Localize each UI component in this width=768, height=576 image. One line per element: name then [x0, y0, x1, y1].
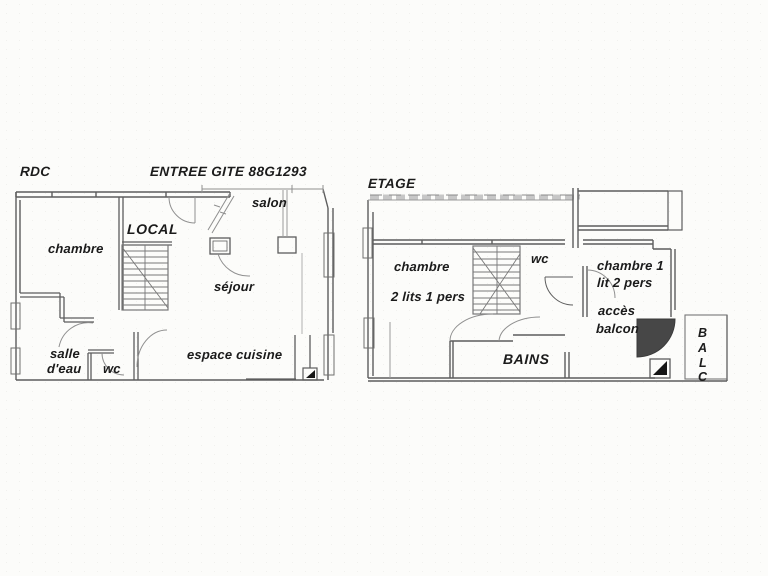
etage-floorplan-drawing	[362, 170, 768, 400]
rdc-label-wc: wc	[103, 361, 121, 376]
rdc-label-salon: salon	[252, 195, 287, 210]
etage-label-balcon: balcon	[596, 321, 640, 336]
etage-balcon-letter-a: A	[698, 341, 707, 355]
etage-door-arcs	[450, 270, 615, 341]
rdc-floor-label: RDC	[20, 164, 51, 179]
rdc-label-chambre: chambre	[48, 241, 104, 256]
etage-floor-label: ETAGE	[368, 176, 416, 191]
etage-balcon-letter-l: L	[699, 356, 707, 370]
rdc-label-salle-eau-line2: d'eau	[47, 361, 82, 376]
rdc-label-local: LOCAL	[127, 221, 179, 237]
etage-label-bains: BAINS	[503, 351, 550, 367]
etage-label-acces: accès	[598, 303, 636, 318]
scanned-floorplan-page: { "colors": { "wall": "#5d5d5d", "thin_w…	[0, 0, 768, 576]
rdc-corner-chimney	[303, 368, 317, 380]
etage-balcony-door	[637, 319, 675, 357]
etage-label-chambre1-bed: lit 2 pers	[597, 275, 653, 290]
rdc-label-espace-cuisine: espace cuisine	[187, 347, 283, 362]
rdc-floorplan: RDC ENTREE GITE 88G1293 salon LOCAL cham…	[6, 160, 358, 410]
rdc-title: ENTREE GITE 88G1293	[150, 164, 307, 179]
etage-corner-chimney	[650, 359, 670, 378]
rdc-label-sejour: séjour	[214, 279, 255, 294]
etage-floorplan: ETAGE chambre 2 lits 1 pers wc chambre 1…	[362, 170, 768, 400]
etage-balcon-letter-b: B	[698, 326, 707, 340]
etage-label-chambre: chambre	[394, 259, 450, 274]
etage-roof-band	[370, 195, 580, 197]
rdc-label-salle-eau-line1: salle	[50, 346, 80, 361]
etage-label-wc: wc	[531, 251, 549, 266]
etage-balcon-letter-c: C	[698, 370, 707, 384]
etage-label-chambre1: chambre 1	[597, 258, 664, 273]
etage-stairs	[473, 246, 520, 314]
etage-label-chambre-beds: 2 lits 1 pers	[391, 289, 466, 304]
rdc-stairs	[122, 245, 168, 310]
